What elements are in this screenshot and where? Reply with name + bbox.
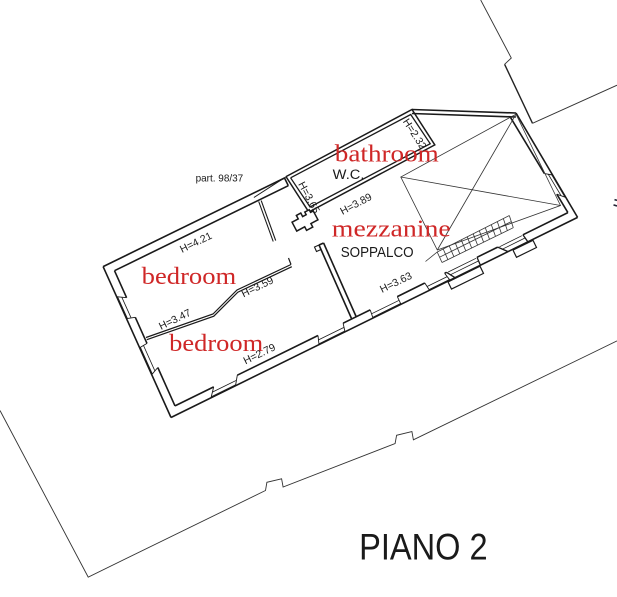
svg-text:mezzanine: mezzanine — [332, 217, 451, 243]
svg-text:bedroom: bedroom — [142, 264, 237, 290]
svg-text:H=3.59: H=3.59 — [240, 274, 276, 300]
svg-text:H=3.89: H=3.89 — [338, 191, 374, 218]
svg-text:H=4.21: H=4.21 — [178, 230, 214, 256]
svg-text:W.C.: W.C. — [333, 167, 365, 182]
svg-text:SOPPALCO: SOPPALCO — [341, 244, 414, 261]
svg-text:PIANO 2: PIANO 2 — [359, 527, 488, 568]
svg-text:part. 98/37: part. 98/37 — [196, 173, 244, 185]
svg-text:H=3.47: H=3.47 — [157, 307, 193, 333]
